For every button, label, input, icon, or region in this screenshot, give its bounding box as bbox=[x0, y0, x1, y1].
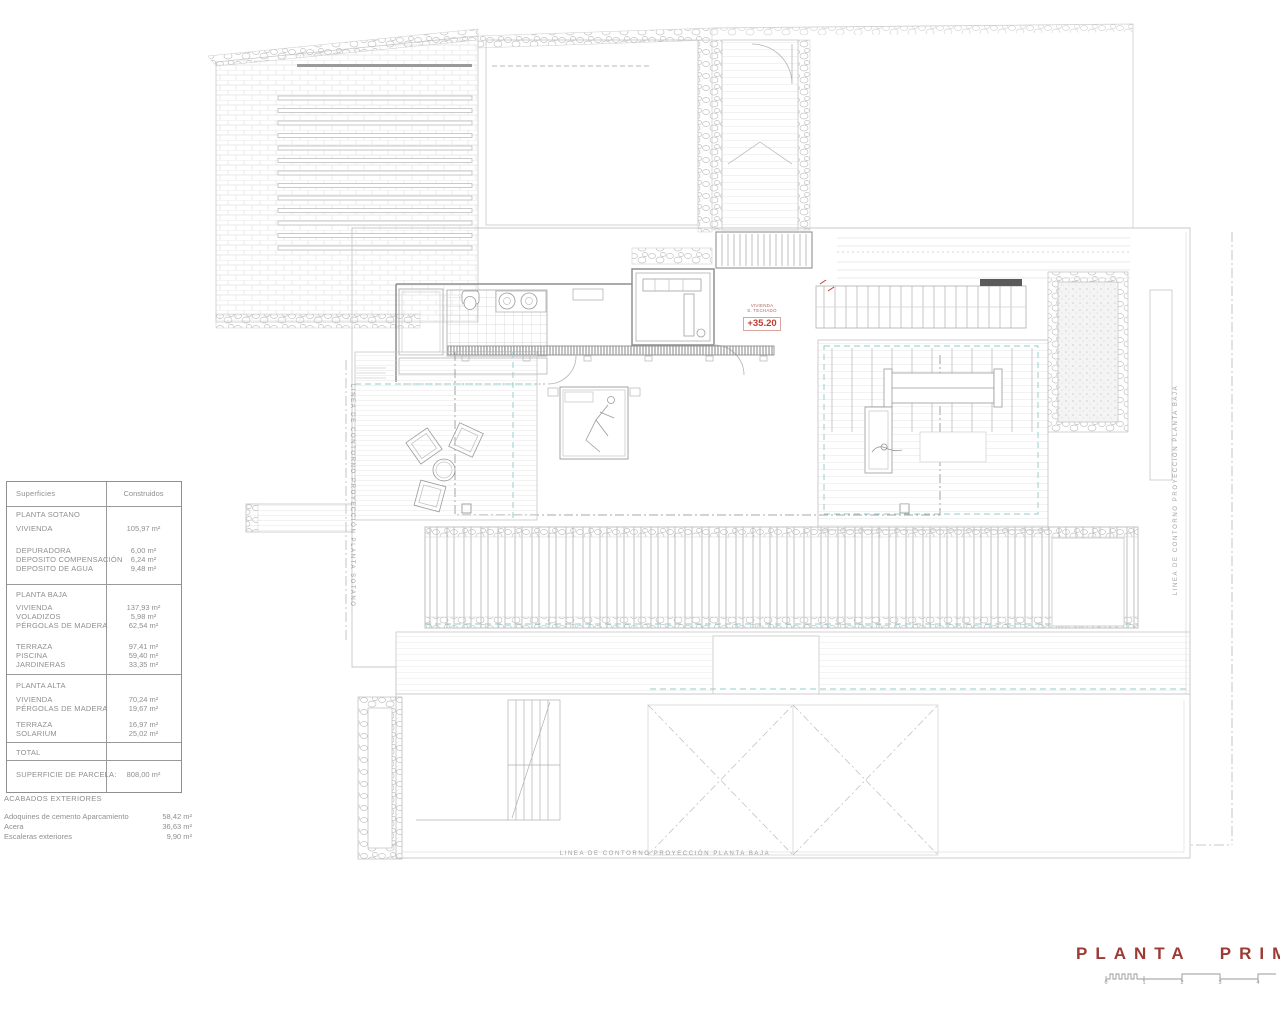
stair-core bbox=[632, 269, 744, 375]
finish-row: Adoquines de cemento Aparcamiento58,42 m… bbox=[4, 812, 192, 822]
exterior-finishes: ACABADOS EXTERIORES Adoquines de cemento… bbox=[4, 794, 192, 842]
contour-label-right: LINEA DE CONTORNO PROYECCIÓN PLANTA BAJA bbox=[1173, 380, 1179, 600]
scale-bar-graphic bbox=[1098, 966, 1280, 992]
stone-planter-left bbox=[358, 697, 402, 859]
gravel-planter bbox=[1048, 272, 1172, 626]
surfaces-table: Superficies Construidos PLANTA SOTANO VI… bbox=[6, 481, 182, 793]
bed bbox=[560, 387, 628, 459]
table-row: PÉRGOLAS DE MADERA62,54 m² bbox=[7, 621, 181, 631]
pergola-slats bbox=[425, 527, 1138, 628]
scale-tick: 3 bbox=[1215, 980, 1225, 986]
table-row-parcel: SUPERFICIE DE PARCELA:808,00 m² bbox=[7, 770, 181, 780]
col-construidos: Construidos bbox=[106, 489, 181, 499]
vent-grille bbox=[632, 232, 812, 268]
contour-label-left: LINEA DE CONTORNO PROYECCIÓN PLANTA SOTA… bbox=[349, 384, 355, 604]
pool-terrace bbox=[818, 340, 1048, 530]
table-row: PLANTA ALTA bbox=[7, 681, 181, 691]
level-marker: VIVIENDA S. TECHADO +35.20 bbox=[736, 303, 788, 331]
bench bbox=[884, 369, 1002, 407]
plan-title: PLANTA PRIMERA bbox=[1076, 944, 1280, 964]
table-row: PLANTA BAJA bbox=[7, 590, 181, 600]
scale-tick: 0 bbox=[1101, 980, 1111, 986]
table-row: DEPOSITO DE AGUA9,48 m² bbox=[7, 564, 181, 574]
exterior-finishes-title: ACABADOS EXTERIORES bbox=[4, 794, 192, 803]
contour-label-bottom: LINEA DE CONTORNO PROYECCIÓN PLANTA BAJA bbox=[500, 851, 830, 857]
table-row: SOLARIUM25,02 m² bbox=[7, 729, 181, 739]
col-superficies: Superficies bbox=[16, 489, 55, 499]
table-row: PÉRGOLAS DE MADERA19,67 m² bbox=[7, 704, 181, 714]
table-row: PLANTA SOTANO bbox=[7, 510, 181, 520]
scale-tick: 4 bbox=[1253, 980, 1263, 986]
west-terrace bbox=[246, 352, 537, 532]
site-paving-top-left bbox=[208, 29, 478, 328]
table-row: TOTAL bbox=[7, 748, 181, 758]
table-row: JARDINERAS33,35 m² bbox=[7, 660, 181, 670]
table-header: Superficies Construidos bbox=[7, 489, 181, 499]
level-value: +35.20 bbox=[743, 317, 780, 331]
lower-level bbox=[358, 632, 1190, 859]
finish-row: Acera36,63 m² bbox=[4, 822, 192, 832]
scale-tick: 1 bbox=[1139, 980, 1149, 986]
entrance-court bbox=[478, 24, 1133, 232]
scale-bar: 0 1 2 3 4 bbox=[1098, 966, 1280, 992]
scale-tick: 2 bbox=[1177, 980, 1187, 986]
finish-row: Escaleras exteriores9,90 m² bbox=[4, 832, 192, 842]
floorplan-drawing bbox=[0, 0, 1280, 1024]
table-row: VIVIENDA105,97 m² bbox=[7, 524, 181, 534]
floor-plan-sheet: Superficies Construidos PLANTA SOTANO VI… bbox=[0, 0, 1280, 1024]
